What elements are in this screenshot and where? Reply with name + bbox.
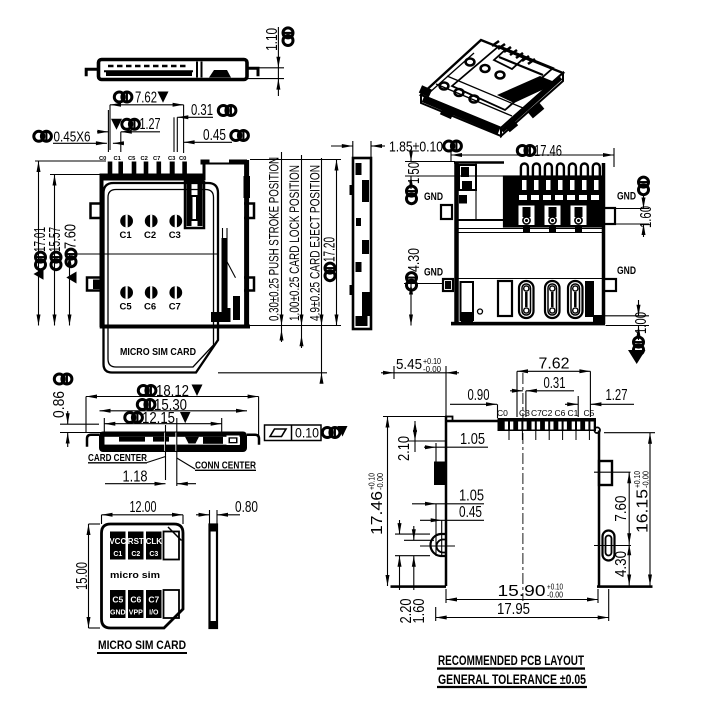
svg-text:0.80: 0.80: [235, 499, 258, 516]
svg-text:15.57: 15.57: [47, 227, 64, 252]
svg-text:micro sim: micro sim: [110, 570, 160, 581]
svg-text:GENERAL TOLERANCE ±0.05: GENERAL TOLERANCE ±0.05: [438, 672, 586, 687]
svg-text:C6: C6: [555, 408, 566, 418]
svg-text:15.00: 15.00: [74, 562, 91, 590]
svg-text:C7: C7: [531, 408, 542, 418]
svg-text:17.95: 17.95: [497, 601, 530, 618]
svg-text:GND: GND: [424, 191, 443, 203]
svg-text:0.45: 0.45: [203, 127, 226, 144]
svg-text:VPP: VPP: [129, 610, 143, 617]
svg-text:1.85±0.10: 1.85±0.10: [389, 139, 443, 156]
svg-text:C5: C5: [120, 302, 133, 313]
svg-text:17.46: 17.46: [369, 491, 386, 535]
svg-text:-0.00: -0.00: [547, 590, 563, 600]
svg-text:C7: C7: [153, 156, 160, 162]
svg-text:C1: C1: [113, 551, 122, 558]
svg-text:1.27: 1.27: [606, 387, 628, 404]
svg-text:MICRO SIM CARD: MICRO SIM CARD: [120, 346, 196, 358]
svg-text:C5: C5: [584, 408, 595, 418]
svg-text:VCC: VCC: [109, 537, 126, 546]
svg-text:1.60: 1.60: [411, 598, 428, 623]
svg-text:0.30±0.25 PUSH STROKE POSITION: 0.30±0.25 PUSH STROKE POSITION: [266, 157, 282, 321]
svg-text:-0.00: -0.00: [641, 471, 651, 488]
svg-text:0.86: 0.86: [51, 391, 68, 418]
svg-text:C3: C3: [149, 551, 158, 558]
svg-text:C0: C0: [179, 156, 186, 162]
svg-text:5.45: 5.45: [396, 356, 422, 373]
svg-text:1.27: 1.27: [140, 116, 161, 133]
svg-text:1.60: 1.60: [638, 206, 655, 228]
svg-text:C2: C2: [131, 551, 140, 558]
svg-text:CLK: CLK: [146, 537, 163, 546]
svg-text:GND: GND: [617, 265, 636, 277]
svg-text:1.05: 1.05: [460, 431, 485, 448]
svg-text:0.31: 0.31: [191, 102, 213, 119]
svg-text:C6: C6: [144, 302, 156, 313]
svg-text:4.9±0.25 CARD EJECT POSITION: 4.9±0.25 CARD EJECT POSITION: [307, 165, 323, 321]
svg-text:C2: C2: [542, 408, 553, 418]
svg-text:RST: RST: [128, 537, 144, 546]
svg-text:0.45: 0.45: [459, 504, 482, 521]
svg-text:7.62: 7.62: [539, 356, 570, 373]
svg-text:I/O: I/O: [149, 610, 159, 617]
svg-text:C3: C3: [169, 230, 181, 241]
svg-text:C5: C5: [128, 156, 136, 162]
svg-text:1.05: 1.05: [459, 488, 484, 505]
svg-text:1.10: 1.10: [264, 28, 281, 51]
svg-text:GND: GND: [110, 610, 126, 617]
svg-text:7.62: 7.62: [135, 89, 157, 106]
svg-text:C3: C3: [519, 408, 530, 418]
svg-text:4.30: 4.30: [406, 248, 423, 272]
svg-text:16.15: 16.15: [635, 489, 652, 533]
svg-text:1.00: 1.00: [633, 312, 650, 334]
svg-text:7.60: 7.60: [613, 495, 630, 521]
svg-text:GND: GND: [424, 267, 443, 279]
svg-text:C2: C2: [144, 230, 156, 241]
svg-text:15.90: 15.90: [498, 583, 546, 600]
svg-text:0.10: 0.10: [295, 425, 319, 440]
svg-text:C7: C7: [148, 595, 159, 605]
svg-text:C1: C1: [114, 156, 122, 162]
svg-text:GND: GND: [617, 191, 636, 203]
svg-text:C7: C7: [169, 302, 181, 313]
svg-text:C3: C3: [168, 156, 176, 162]
svg-text:17.20: 17.20: [322, 237, 339, 262]
svg-text:17.46: 17.46: [534, 143, 562, 160]
svg-text:RECOMMENDED PCB LAYOUT: RECOMMENDED PCB LAYOUT: [438, 653, 585, 668]
svg-text:2.10: 2.10: [396, 436, 413, 461]
svg-text:0.90: 0.90: [468, 387, 490, 404]
svg-text:C2: C2: [141, 156, 148, 162]
svg-text:4.30: 4.30: [613, 551, 630, 577]
svg-text:0.31: 0.31: [544, 375, 566, 392]
svg-text:C6: C6: [130, 595, 141, 605]
svg-text:12.00: 12.00: [130, 499, 157, 516]
svg-text:1.50: 1.50: [406, 162, 423, 184]
svg-text:C1: C1: [568, 408, 579, 418]
svg-text:C0: C0: [497, 408, 508, 418]
svg-text:1.00±0.25 CARD LOCK POSITION: 1.00±0.25 CARD LOCK POSITION: [286, 165, 302, 321]
svg-text:7.60: 7.60: [63, 224, 80, 249]
svg-text:-0.00: -0.00: [375, 473, 385, 490]
svg-text:MICRO SIM CARD: MICRO SIM CARD: [98, 638, 186, 652]
svg-text:C5: C5: [112, 595, 123, 605]
svg-text:1.18: 1.18: [123, 469, 148, 486]
svg-text:C1: C1: [120, 230, 133, 241]
